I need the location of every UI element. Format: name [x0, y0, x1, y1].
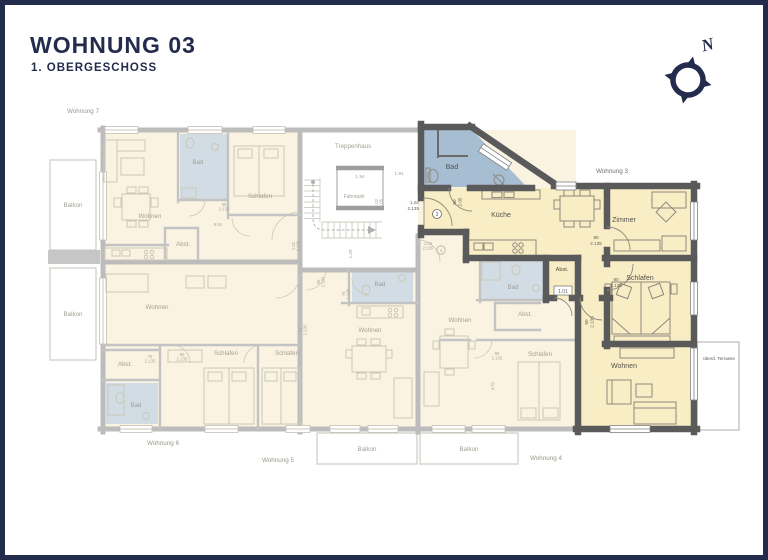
label-w6-schlafen2: Schlafen	[275, 350, 300, 357]
svg-text:2.135: 2.135	[177, 357, 188, 362]
svg-text:2.135: 2.135	[303, 324, 308, 335]
label-w4-dim: 4.91	[490, 381, 495, 390]
label-w7-dim: 9.91	[214, 222, 223, 227]
label-w3-kueche: Küche	[491, 212, 511, 219]
label-balkon-w7: Balkon	[64, 202, 83, 209]
svg-text:2.135: 2.135	[423, 246, 434, 251]
label-w6-bad: Bad	[130, 402, 142, 409]
label-w5-bad: Bad	[374, 281, 386, 288]
svg-text:2.135: 2.135	[408, 206, 420, 211]
label-w6-abst: Abst.	[118, 361, 132, 368]
label-balkon-w5: Balkon	[358, 446, 377, 453]
label-treppenhaus: Treppenhaus	[335, 143, 371, 150]
svg-text:90: 90	[584, 319, 589, 325]
label-wohnung-4: Wohnung 4	[530, 455, 563, 462]
w3-entry	[424, 188, 468, 234]
balcony-divider-wall	[48, 250, 100, 264]
svg-text:1.20: 1.20	[348, 249, 353, 258]
svg-text:2.135: 2.135	[589, 316, 594, 328]
label-balkon-w4: Balkon	[460, 446, 479, 453]
floorplan-page: WOHNUNG 03 1. OBERGESCHOSS N	[0, 0, 768, 560]
label-w3-terrasse: überd. Terrasse	[703, 356, 735, 361]
label-w4-abst: Abst.	[518, 311, 532, 318]
label-w3-bad: Bad	[446, 164, 459, 171]
label-w4-bad: Bad	[507, 284, 519, 291]
label-w3-abst-code: 1.01	[558, 289, 568, 295]
label-w7-bad: Bad	[192, 159, 204, 166]
svg-text:2.135: 2.135	[145, 359, 156, 364]
label-w3-zimmer: Zimmer	[612, 217, 636, 224]
label-w4-schlafen: Schlafen	[528, 351, 553, 358]
label-w3-abst: Abst.	[556, 267, 569, 273]
label-w4-wohnen: Wohnen	[449, 317, 472, 324]
label-w7-wohnen: Wohnen	[139, 213, 162, 220]
svg-text:2.135: 2.135	[219, 207, 230, 212]
label-wohnung-7: Wohnung 7	[67, 108, 100, 115]
svg-text:2.135: 2.135	[321, 276, 326, 287]
label-w3-wohnen: Wohnen	[611, 363, 637, 370]
label-dim-120: 1.20	[348, 249, 353, 258]
svg-text:90: 90	[613, 277, 619, 282]
label-dim-194: 1.94	[355, 174, 365, 180]
svg-text:4.91: 4.91	[490, 381, 495, 390]
label-wohnung-3: Wohnung 3	[596, 168, 629, 175]
svg-text:2.135: 2.135	[610, 283, 622, 288]
label-w5-wohnen: Wohnen	[359, 327, 382, 334]
w7-bath	[180, 134, 227, 200]
svg-text:1.02: 1.02	[410, 200, 419, 205]
label-w6-wohnen: Wohnen	[146, 304, 169, 311]
label-w3-schlafen: Schlafen	[626, 275, 653, 282]
stair-walkline-start	[311, 180, 315, 184]
page-subtitle: 1. OBERGESCHOSS	[31, 62, 157, 74]
page-title: WOHNUNG 03	[30, 32, 196, 58]
svg-text:80: 80	[452, 199, 457, 205]
svg-text:2.135: 2.135	[492, 356, 503, 361]
svg-text:90: 90	[593, 235, 599, 240]
svg-text:2.05: 2.05	[379, 198, 384, 207]
label-balkon-w6: Balkon	[64, 311, 83, 318]
label-fahrstuhl: Fahrstuhl	[344, 194, 365, 200]
label-w7-schlafen: Schlafen	[248, 193, 273, 200]
label-wohnung-5: Wohnung 5	[262, 457, 295, 464]
label-w6-schlafen1: Schlafen	[214, 350, 239, 357]
floorplan-canvas: WOHNUNG 03 1. OBERGESCHOSS N	[0, 0, 768, 560]
label-dim-191: 1.91	[394, 171, 404, 177]
svg-text:2.135: 2.135	[590, 241, 602, 246]
svg-text:2.135: 2.135	[296, 240, 301, 251]
svg-text:2.05: 2.05	[457, 197, 462, 206]
label-lift-door: 1.02 2.05	[374, 198, 384, 207]
svg-text:3: 3	[436, 212, 439, 218]
svg-text:2.135: 2.135	[346, 288, 351, 299]
label-w7-abst: Abst.	[176, 241, 190, 248]
label-wohnung-6: Wohnung 6	[147, 440, 180, 447]
